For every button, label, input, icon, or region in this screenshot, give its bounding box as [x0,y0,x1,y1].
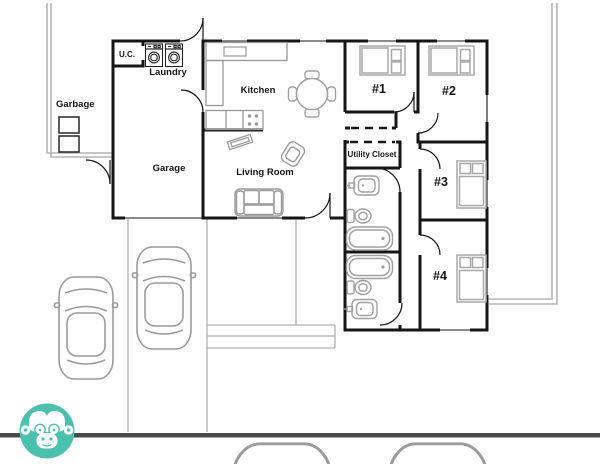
kitchen-sink-icon [224,47,246,56]
bedroom2-door-arc [418,113,438,133]
room-label-utility-closet: Utility Closet [344,151,400,159]
sofa-icon [235,189,283,216]
bed-icon [457,255,486,302]
toilet-icon [347,209,371,223]
tv-icon [227,134,252,149]
bedroom4-door-arc [420,235,440,255]
car-icon [225,444,340,464]
bathtub-icon [347,256,393,279]
washer-icon [146,44,163,67]
garbage-bin-icon [59,117,79,152]
stove-icon [206,111,263,130]
gate-door-arc [86,160,110,184]
back-door-arc [180,18,203,41]
room-label-bedroom-3: #3 [421,176,461,189]
bathtub-icon [347,227,393,250]
patio-steps [207,220,335,348]
armchair-icon [280,140,307,168]
bed-icon [360,46,405,75]
dining-table-icon [289,71,336,117]
car-icon [133,247,196,349]
bedroom3-door-arc [420,149,440,169]
dryer-icon [166,44,183,67]
floor-plan-drawing [0,0,600,464]
road [0,433,600,438]
room-label-living-room: Living Room [223,168,307,178]
room-label-bedroom-2: #2 [429,85,469,98]
right-fence [489,3,557,304]
toilet-icon [347,281,371,295]
room-label-kitchen: Kitchen [226,86,290,96]
left-fence [47,3,112,157]
bathroom-sink-icon [344,300,377,319]
closet-dashed-doors [350,128,395,142]
bathroom-sink-icon [346,176,379,195]
floor-plan: Garbage U.C. Laundry Kitchen Garage Livi… [0,0,600,464]
room-label-bedroom-1: #1 [359,83,399,96]
room-label-bedroom-4: #4 [420,270,460,283]
bed-icon [457,161,486,208]
bed-icon [429,46,474,75]
monkey-logo-icon [20,404,75,459]
front-door-arc [305,193,330,218]
room-label-laundry: Laundry [139,68,197,78]
bathroom2-door-arc [380,303,402,325]
room-label-garage: Garage [137,164,201,174]
car-icon [381,444,496,464]
room-label-utility-cupboard: U.C. [113,51,141,59]
car-icon [55,277,118,379]
room-label-garbage: Garbage [56,100,95,110]
laundry-door-arc [181,90,203,112]
